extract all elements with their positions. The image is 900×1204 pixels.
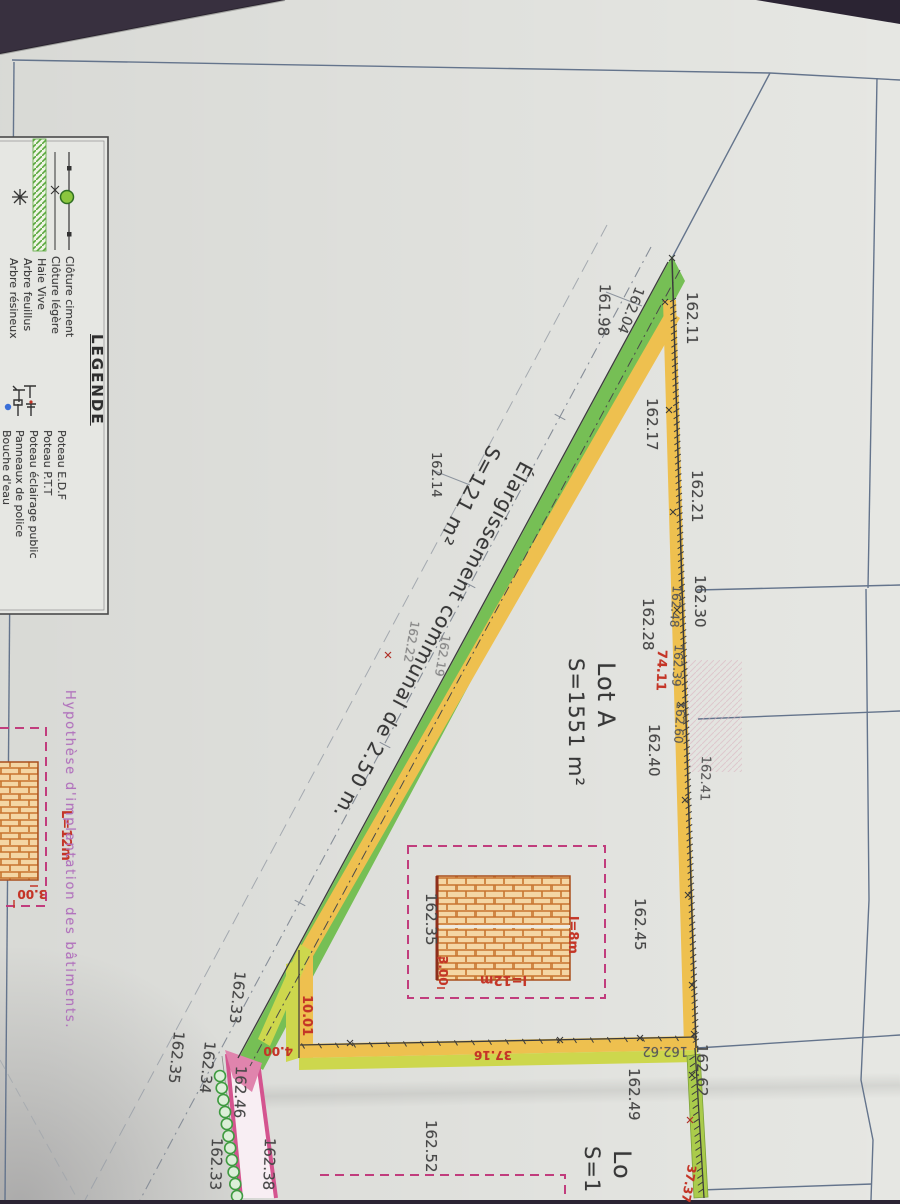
elevation-label: 162.40 [646,724,661,777]
survey-plan-photo: { "document": { "kind": "Plan de divisio… [0,0,900,1200]
title-label: S=1 [581,1146,602,1193]
title-label: Lo [610,1150,634,1180]
dimension-label: 3.00 [17,888,47,900]
elevation-label: 162.21 [689,470,704,523]
elevation-label: 162.30 [692,575,707,628]
dimension-label: l=8m [566,916,579,954]
elevation-label: 162.48 [668,585,683,628]
legend-item-label: Poteau P.T.T [42,430,53,495]
legend-item-label: Poteau éclairage public [28,430,39,559]
elevation-label: 162.41 [697,756,712,802]
elevation-label: 162.17 [644,398,659,451]
legend-item-label: Arbre résineux [8,258,19,339]
plan-sheet: LEGENDE161.98162.04162.11162.17162.21162… [0,0,900,1200]
legend-item-label: Bouche d'eau [1,430,12,505]
elevation-label: 162.33 [207,1137,224,1190]
elevation-label: 162.38 [260,1137,277,1190]
dimension-label: 3.00 [437,956,449,986]
legend-item-label: Haie Vive [36,258,47,310]
dimension-label: 37.16 [474,1049,512,1061]
elevation-label: 162.14 [429,452,442,498]
elevation-label: 162.62 [694,1044,709,1097]
elevation-label: 162.04 [615,285,646,336]
dimension-label: 4.00 [263,1045,293,1057]
elevation-label: 162.11 [684,292,699,345]
legend-item-label: Panneaux de police [14,430,25,537]
elevation-label: 162.45 [632,898,647,951]
legend-item-label: Poteau E.D.F [56,430,67,500]
legend-item-label: Clôture ciment [64,256,75,337]
elevation-label: 162.39 [670,644,685,687]
dimension-label: l=12m [480,973,527,986]
elevation-label: 162.28 [640,598,655,651]
elevation-label: 162.49 [626,1068,641,1121]
elevation-label: 162.60 [672,701,687,744]
elevation-label: 161.98 [595,283,612,336]
elevation-label: 162.52 [423,1120,438,1173]
elevation-label: 162.35 [423,893,438,946]
labels-layer: LEGENDE161.98162.04162.11162.17162.21162… [0,0,900,1200]
elevation-label: 162.62 [643,1044,689,1057]
dimension-label: 74.11 [654,650,668,692]
dimension-label: 10.01 [300,995,313,1036]
elevation-label: LEGENDE [89,334,104,426]
legend-item-label: Clôture légère [50,256,61,334]
elevation-label: 162.46 [231,1065,248,1118]
elevation-label: 162.33 [227,970,247,1024]
title-label: Élargissement communal de 2.50 m. [330,459,536,823]
note-label: Hypothèse d'implantation des bâtiments. [63,690,76,1029]
dimension-label: 37.37 [680,1164,698,1203]
elevation-label: 162.35 [166,1030,186,1084]
legend-item-label: Arbre feuillus [22,258,33,331]
title-label: S=1551 m² [565,658,586,787]
elevation-label: 162.34 [197,1040,217,1094]
title-label: Lot A [594,662,618,728]
